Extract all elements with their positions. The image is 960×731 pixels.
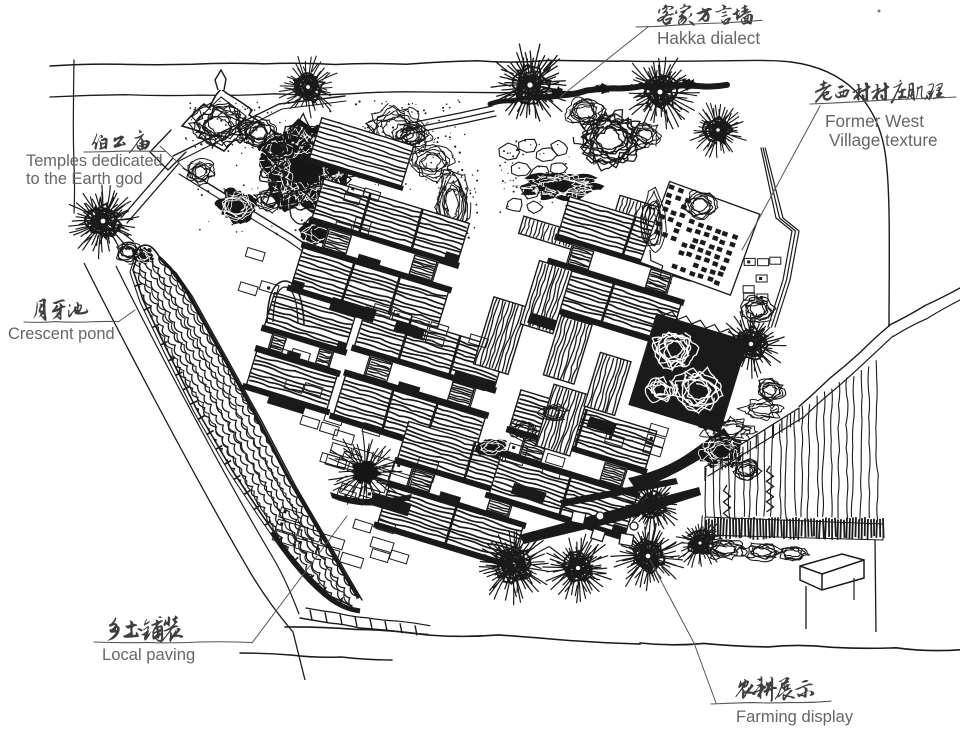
svg-text:Village texture: Village texture <box>829 130 938 150</box>
svg-text:Former West: Former West <box>825 111 924 131</box>
svg-text:to the Earth god: to the Earth god <box>26 170 143 188</box>
svg-text:Farming display: Farming display <box>736 707 854 726</box>
svg-text:Local paving: Local paving <box>102 645 195 664</box>
svg-text:Temples dedicated: Temples dedicated <box>26 152 163 170</box>
svg-text:Hakka dialect: Hakka dialect <box>657 28 760 48</box>
svg-text:Crescent pond: Crescent pond <box>8 325 115 343</box>
